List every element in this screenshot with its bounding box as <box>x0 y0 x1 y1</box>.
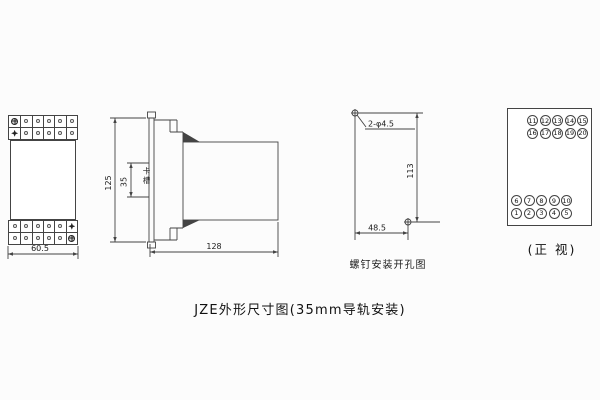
terminal-cell <box>32 128 43 140</box>
terminal-hole-icon <box>47 131 51 135</box>
side-view: 125 35 128 <box>100 105 295 265</box>
terminal-20: 20 <box>577 128 588 139</box>
terminal-7: 7 <box>524 195 535 206</box>
terminal-hole-icon <box>13 224 17 228</box>
terminal-hole-icon <box>24 119 28 123</box>
rib-top <box>183 132 200 142</box>
terminal-16: 16 <box>527 128 538 139</box>
terminal-18: 18 <box>552 128 563 139</box>
terminal-10: 10 <box>561 195 572 206</box>
dim-125-label: 125 <box>104 175 113 190</box>
terminal-hole-icon <box>58 131 62 135</box>
terminal-star-icon <box>11 130 18 137</box>
terminal-hole-icon <box>58 236 62 240</box>
terminal-cell <box>9 128 20 140</box>
terminal-cell <box>32 116 43 128</box>
dim-113-label: 113 <box>406 163 415 178</box>
hole-callout-label: 2-φ4.5 <box>368 120 394 129</box>
terminal-1: 1 <box>511 208 522 219</box>
terminal-view-caption: (正 视) <box>497 239 600 258</box>
terminal-hole-icon <box>36 119 40 123</box>
relay-body-front <box>10 140 76 220</box>
terminal-hole-icon <box>47 224 51 228</box>
housing-body-side <box>183 142 278 220</box>
rib-bottom <box>183 220 200 228</box>
terminal-block-top <box>8 115 78 140</box>
terminal-cell <box>43 116 54 128</box>
terminal-15: 15 <box>577 115 588 126</box>
terminal-hole-icon <box>24 224 28 228</box>
terminal-3: 3 <box>536 208 547 219</box>
front-outline-view <box>8 115 78 245</box>
terminal-group-bottom: 6 7 8 9 10 1 2 3 4 5 <box>511 195 572 220</box>
terminal-group-top: 11 12 13 14 15 16 17 18 19 20 <box>527 115 588 140</box>
terminal-cell <box>43 128 54 140</box>
terminal-layout-view: 11 12 13 14 15 16 17 18 19 20 6 7 8 9 10… <box>507 108 592 226</box>
terminal-19: 19 <box>565 128 576 139</box>
terminal-13: 13 <box>552 115 563 126</box>
housing-profile <box>154 120 183 240</box>
dim-60-5-label: 60.5 <box>31 244 49 253</box>
screw-head-icon <box>11 118 18 125</box>
terminal-cell <box>32 221 43 233</box>
terminal-4: 4 <box>549 208 560 219</box>
terminal-cell <box>9 221 20 233</box>
terminal-cell <box>66 221 77 233</box>
front-width-dimension: 60.5 <box>2 243 84 263</box>
terminal-cell <box>54 116 65 128</box>
terminal-hole-icon <box>13 236 17 240</box>
terminal-6: 6 <box>511 195 522 206</box>
terminal-cell <box>43 221 54 233</box>
terminal-block-bottom <box>8 220 78 245</box>
terminal-row: 16 17 18 19 20 <box>527 128 588 139</box>
terminal-hole-icon <box>24 131 28 135</box>
drill-diagram-caption: 螺钉安装开孔图 <box>350 258 427 271</box>
terminal-5: 5 <box>561 208 572 219</box>
terminal-hole-icon <box>70 131 74 135</box>
terminal-hole-icon <box>58 119 62 123</box>
terminal-cell <box>20 116 31 128</box>
terminal-14: 14 <box>565 115 576 126</box>
terminal-9: 9 <box>549 195 560 206</box>
terminal-hole-icon <box>58 224 62 228</box>
dim-48-5-label: 48.5 <box>368 224 386 233</box>
terminal-2: 2 <box>524 208 535 219</box>
terminal-17: 17 <box>540 128 551 139</box>
terminal-12: 12 <box>540 115 551 126</box>
terminal-cell <box>54 128 65 140</box>
terminal-hole-icon <box>47 119 51 123</box>
terminal-8: 8 <box>536 195 547 206</box>
terminal-cell <box>66 116 77 128</box>
screw-head-icon <box>68 235 75 242</box>
terminal-row: 11 12 13 14 15 <box>527 115 588 126</box>
panel-top-cap <box>148 112 156 118</box>
terminal-cell <box>9 116 20 128</box>
terminal-row: 1 2 3 4 5 <box>511 208 572 219</box>
terminal-row: 6 7 8 9 10 <box>511 195 572 206</box>
terminal-11: 11 <box>527 115 538 126</box>
terminal-cell <box>54 221 65 233</box>
terminal-hole-icon <box>70 119 74 123</box>
drawing-title: JZE外形尺寸图(35mm导轨安装) <box>0 299 600 318</box>
terminal-cell <box>20 128 31 140</box>
terminal-hole-icon <box>36 224 40 228</box>
drill-hole-diagram: 113 48.5 2-φ4.5 螺钉安装开孔图 <box>345 105 450 277</box>
terminal-cell <box>20 221 31 233</box>
dim-128-label: 128 <box>206 242 221 251</box>
dim-35-label: 35 <box>120 177 129 187</box>
terminal-hole-icon <box>24 236 28 240</box>
terminal-hole-icon <box>36 236 40 240</box>
terminal-hole-icon <box>36 131 40 135</box>
terminal-cell <box>66 128 77 140</box>
terminal-hole-icon <box>47 236 51 240</box>
terminal-star-icon <box>68 223 75 230</box>
panel-bottom-cap <box>148 242 156 248</box>
din-slot-label: 卡槽 <box>141 167 152 186</box>
